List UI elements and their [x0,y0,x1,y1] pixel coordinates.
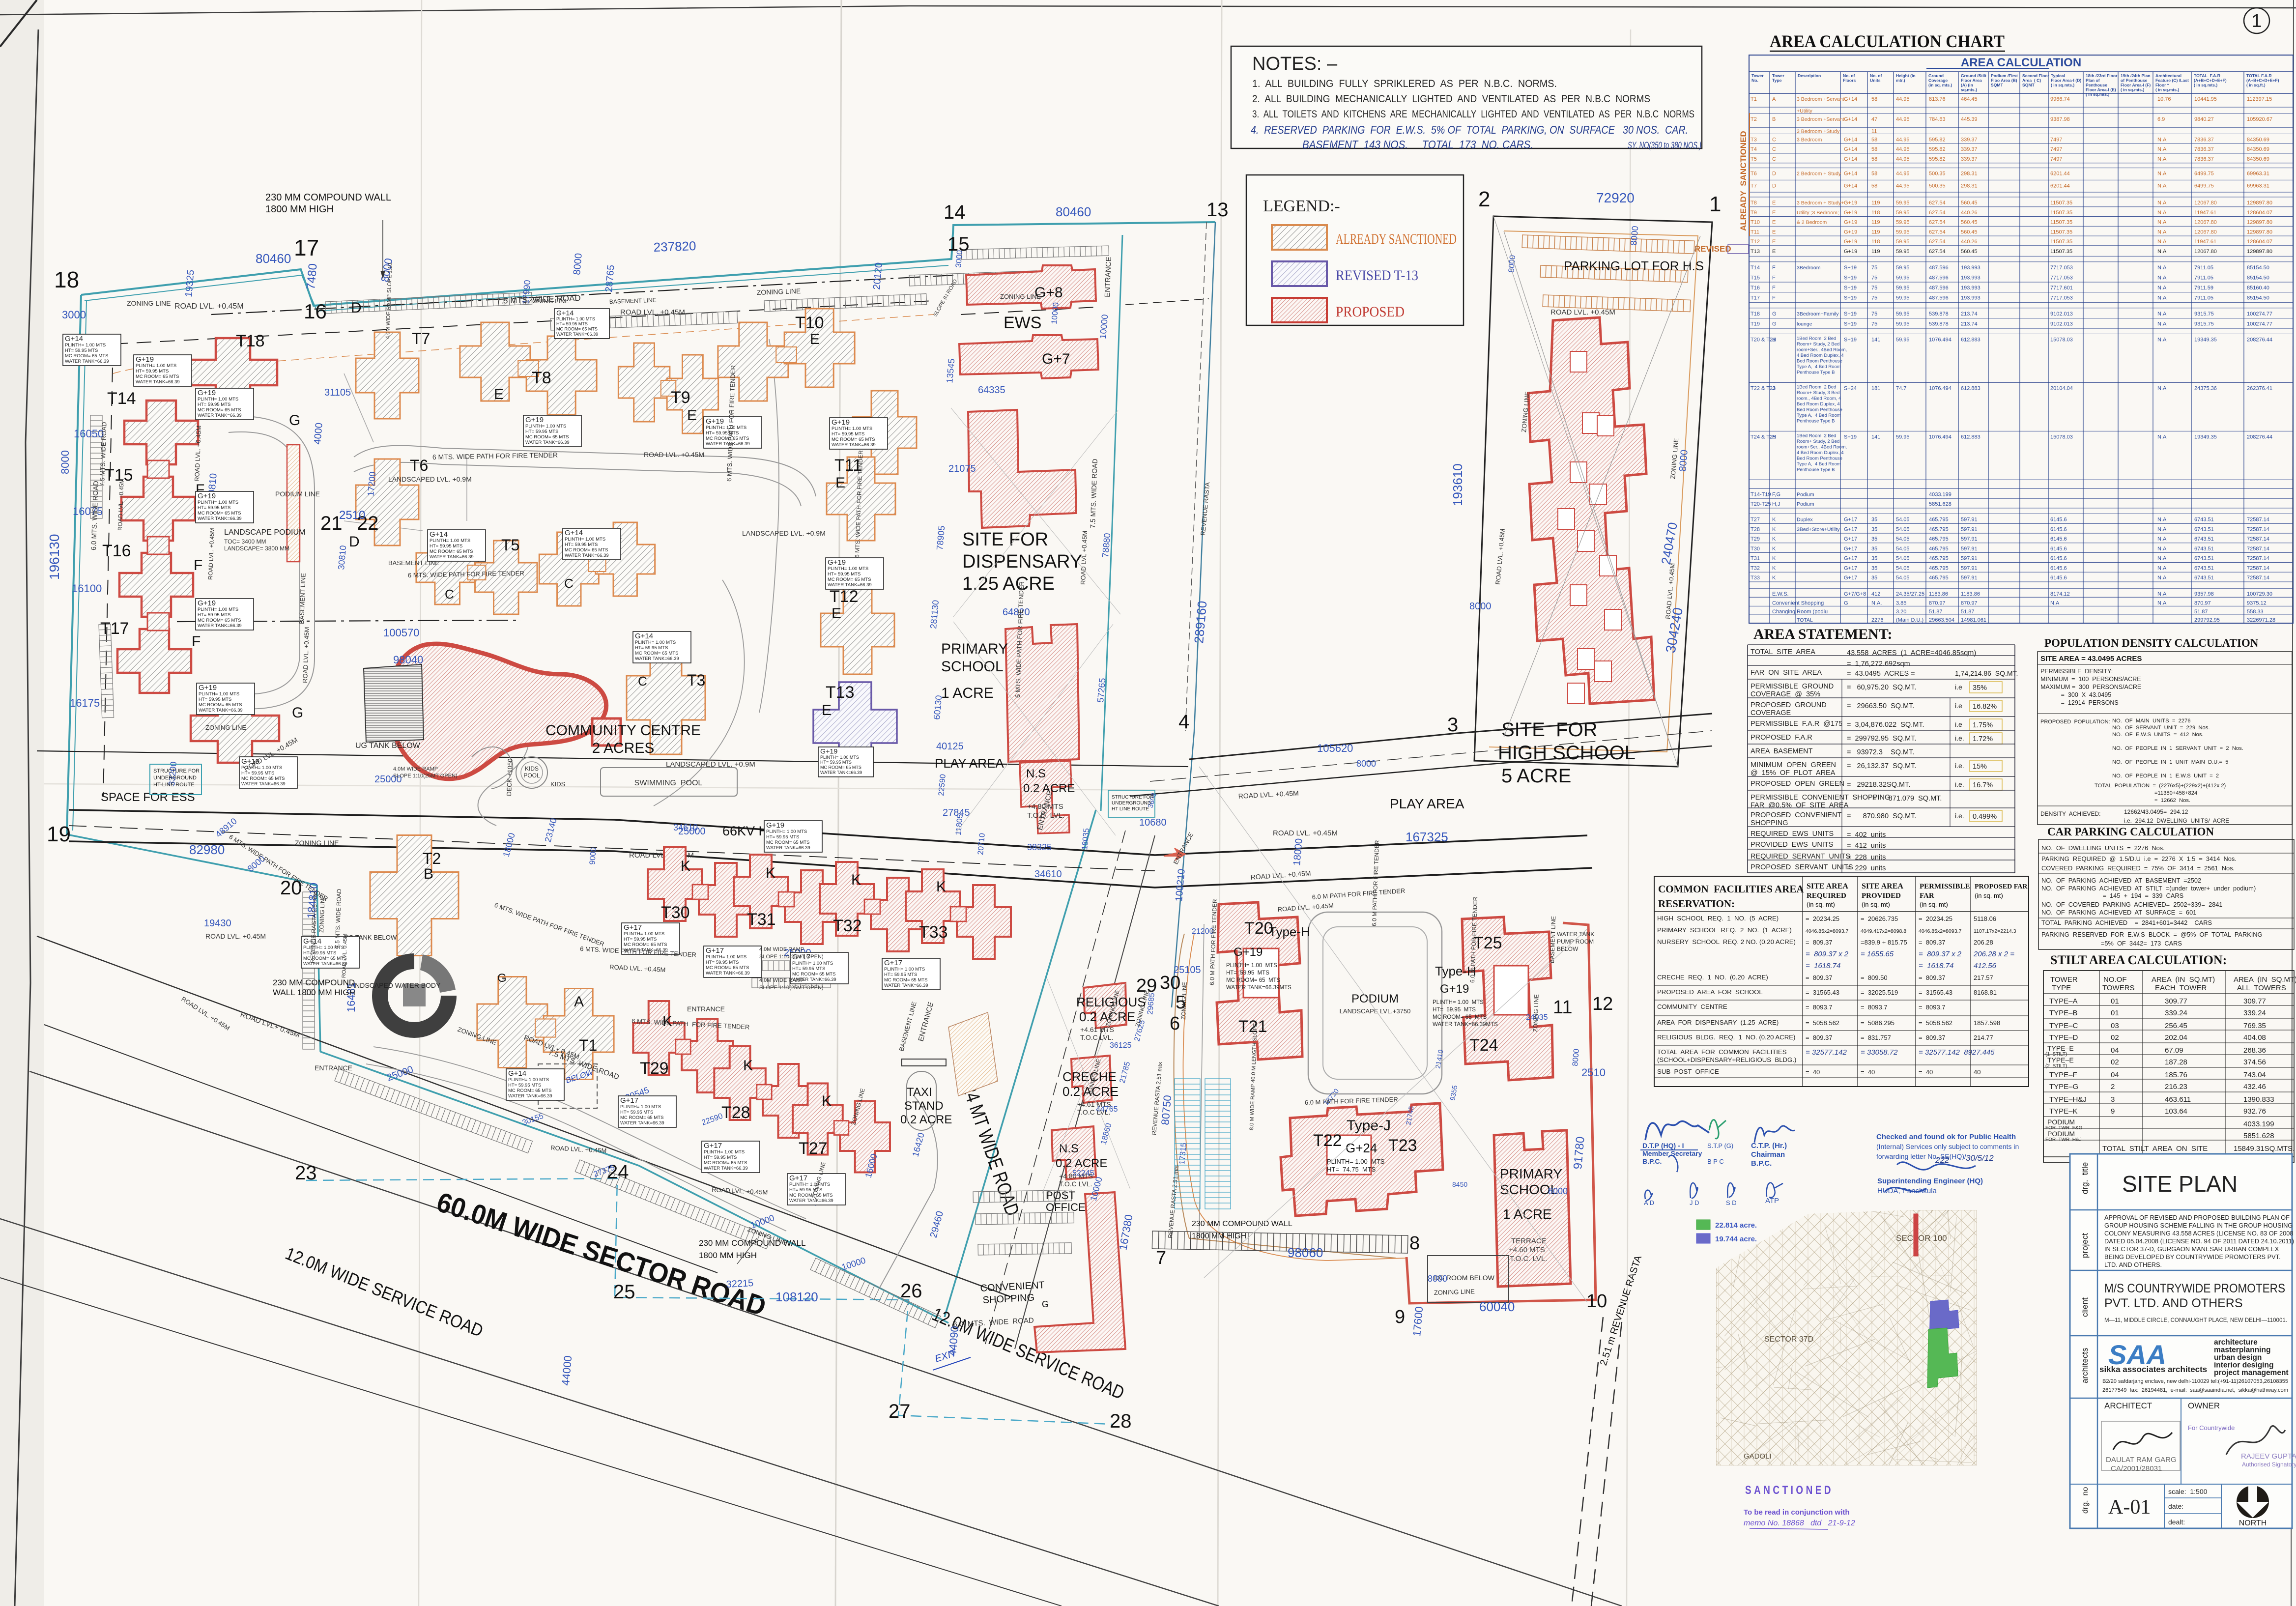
svg-text:82980: 82980 [189,842,225,857]
svg-text:= 809.37: = 809.37 [1806,974,1833,981]
svg-text:04: 04 [2111,1046,2119,1055]
svg-text:NO. OF PEOPLE IN 1 E.W.S: NO. OF PEOPLE IN 1 E.W.S UNIT = 2 [2112,773,2219,779]
svg-text:S.T.P (G): S.T.P (G) [1707,1142,1733,1149]
svg-text:612.883: 612.883 [1961,337,1980,343]
svg-text:Member Secretary: Member Secretary [1642,1149,1702,1157]
svg-text:UNDERGROUND: UNDERGROUND [153,775,197,781]
svg-text:PERMISSIBLE F.A.R @175: PERMISSIBLE F.A.R @175 [1751,720,1842,728]
svg-text:4.0M WIDE RAMP: 4.0M WIDE RAMP [759,977,804,983]
svg-text:HT= 59.95 MTS: HT= 59.95 MTS [303,950,336,956]
svg-text:6743.51: 6743.51 [2194,536,2214,542]
svg-text:PLINTH= 1.00 MTS: PLINTH= 1.00 MTS [508,1077,549,1083]
svg-text:HT LINE ROUTE: HT LINE ROUTE [1112,806,1149,812]
svg-text:487.596: 487.596 [1929,265,1949,271]
svg-text:G+17: G+17 [1844,526,1857,532]
svg-text:A: A [1772,96,1776,102]
svg-text:4 Bed Room Duplex, 4: 4 Bed Room Duplex, 4 [1797,353,1844,358]
svg-text:108120: 108120 [775,1290,818,1304]
svg-text:SUB POST OFFICE: SUB POST OFFICE [1657,1068,1719,1075]
svg-text:T9: T9 [1751,210,1757,216]
svg-text:TYPE–B: TYPE–B [2049,1009,2078,1017]
svg-text:627.54: 627.54 [1929,239,1946,245]
svg-text:TOWERS: TOWERS [2102,984,2135,992]
svg-text:T14: T14 [1751,265,1760,271]
svg-text:01: 01 [2111,997,2119,1005]
svg-text:G+17: G+17 [706,946,724,955]
svg-text:72587.14: 72587.14 [2247,546,2269,552]
svg-text:WATER TANK: WATER TANK [1557,931,1594,938]
svg-text:HT= 59.95 MTS: HT= 59.95 MTS [884,972,917,977]
svg-text:Ground /Stilt: Ground /Stilt [1961,73,1986,78]
svg-text:MC ROOM= 65 MTS: MC ROOM= 65 MTS [766,840,809,845]
svg-text:K: K [1772,546,1776,552]
svg-text:F: F [1772,295,1776,301]
svg-text:35: 35 [1871,536,1877,542]
svg-text:24375.36: 24375.36 [2194,385,2217,391]
svg-text:SLOPE 1:10(25MT OPEN): SLOPE 1:10(25MT OPEN) [393,773,458,779]
svg-text:= 8093.7: = 8093.7 [1919,1004,1946,1011]
svg-text:= 1655.65: = 1655.65 [1861,950,1894,958]
svg-text:room., 4Bed Room, 4: room., 4Bed Room, 4 [1797,396,1841,401]
svg-text:216.23: 216.23 [2165,1083,2187,1091]
svg-text:F: F [1772,265,1776,271]
svg-text:PLINTH= 1.00 MTS: PLINTH= 1.00 MTS [565,537,605,542]
svg-text:S+19: S+19 [1844,285,1857,291]
svg-text:44765: 44765 [1096,1105,1118,1114]
svg-text:3Bed+Store+Utility: 3Bed+Store+Utility [1797,526,1840,532]
svg-text:813.76: 813.76 [1929,96,1946,102]
svg-text:G: G [292,705,303,721]
svg-text:G+14: G+14 [1844,116,1857,122]
svg-text:T6: T6 [1751,171,1757,177]
svg-text:5118.06: 5118.06 [1974,915,1996,922]
svg-text:98060: 98060 [1288,1245,1323,1260]
svg-text:64335: 64335 [978,385,1005,396]
svg-text:GADOLI: GADOLI [1744,1452,1772,1461]
svg-text:= 809.50: = 809.50 [1861,974,1888,981]
svg-text:59.95: 59.95 [1896,210,1910,216]
svg-text:6145.6: 6145.6 [2050,556,2067,562]
svg-text:465.795: 465.795 [1929,556,1949,562]
svg-text:612.883: 612.883 [1961,385,1980,391]
svg-text:PLINTH= 1.00 MTS: PLINTH= 1.00 MTS [884,967,925,972]
svg-text:19: 19 [47,822,71,846]
svg-text:PLINTH= 1.00 MTS: PLINTH= 1.00 MTS [620,1104,661,1110]
svg-text:( in sq.mts.): ( in sq.mts.) [2155,87,2179,92]
svg-text:237820: 237820 [653,238,696,255]
svg-text:0.2 ACRE: 0.2 ACRE [900,1113,952,1126]
svg-text:HT= 59.95 MTS: HT= 59.95 MTS [198,402,230,407]
svg-text:7836.37: 7836.37 [2194,146,2214,152]
svg-text:G+17: G+17 [1844,575,1857,581]
svg-text:E: E [822,702,832,718]
svg-text:465.795: 465.795 [1929,526,1949,532]
svg-text:MC ROOM= 65 MTS: MC ROOM= 65 MTS [198,511,241,516]
svg-text:32215: 32215 [726,1278,754,1290]
svg-text:G+14: G+14 [1844,183,1857,189]
svg-text:6.9: 6.9 [2157,116,2165,122]
svg-text:ZONING LINE: ZONING LINE [757,287,801,296]
svg-text:D: D [349,534,360,550]
svg-text:project: project [2080,1233,2090,1258]
svg-text:19349.35: 19349.35 [2194,434,2217,440]
svg-text:ZONING LINE: ZONING LINE [1434,1288,1475,1296]
svg-text:59.95: 59.95 [1896,275,1910,281]
svg-text:44.95: 44.95 [1896,96,1910,102]
svg-text:PROPOSED: PROPOSED [1336,304,1405,320]
svg-text:(in sq. mt): (in sq. mt) [1920,901,1948,908]
svg-text:mtr.): mtr.) [1896,78,1905,83]
svg-text:SITE FOR: SITE FOR [962,529,1048,550]
svg-text:S+19: S+19 [1844,434,1857,440]
svg-text:12662/43.0495= 294.12: 12662/43.0495= 294.12 [2124,808,2188,815]
svg-text:627.54: 627.54 [1929,200,1946,206]
svg-text:masterplanning: masterplanning [2214,1346,2270,1354]
svg-text:( in sq.mts.): ( in sq.mts.) [2194,83,2217,87]
svg-text:19349.35: 19349.35 [2194,337,2217,343]
svg-text:T30: T30 [1751,546,1760,552]
svg-text:A: A [574,994,584,1010]
svg-text:MC ROOM= 65 MTS: MC ROOM= 65 MTS [624,942,667,947]
svg-text:36125: 36125 [1110,1041,1132,1050]
svg-text:PRIMARY: PRIMARY [941,641,1008,657]
svg-text:T14: T14 [107,389,136,408]
svg-text:EACH TOWER: EACH TOWER [2155,984,2207,992]
svg-text:C.T.P. (Hr.): C.T.P. (Hr.) [1751,1142,1787,1150]
svg-text:N.S: N.S [1026,767,1046,780]
svg-text:K: K [1772,575,1776,581]
svg-text:Authorised Signatory: Authorised Signatory [2242,1461,2296,1468]
svg-text:ROAD LVL. +0.45M: ROAD LVL. +0.45M [620,308,685,316]
svg-text:scale: 1:500: scale: 1:500 [2168,1488,2208,1495]
svg-text:T2: T2 [1751,116,1757,122]
svg-text:i.e.: i.e. [1955,734,1964,742]
svg-text:T24: T24 [1469,1036,1498,1055]
svg-text:G+7/G+8: G+7/G+8 [1844,591,1866,597]
svg-text:MC ROOM= 65 MTS: MC ROOM= 65 MTS [565,547,608,553]
svg-text:MC ROOM= 65 MTS: MC ROOM= 65 MTS [828,577,871,582]
svg-text:208276.44: 208276.44 [2247,434,2272,440]
svg-text:Floor Area: Floor Area [1961,78,1982,83]
svg-text:7497: 7497 [2050,156,2062,162]
svg-text:4. RESERVED PARKING FOR E.: 4. RESERVED PARKING FOR E.W.S. 5% OF TOT… [1251,123,1688,136]
svg-text:Floor Area-I (E): Floor Area-I (E) [2086,87,2116,92]
svg-text:G+17: G+17 [1844,536,1857,542]
svg-text:lounge: lounge [1797,321,1812,327]
svg-text:3226971.28: 3226971.28 [2247,617,2275,623]
svg-text:= 31565.43: = 31565.43 [1919,989,1952,996]
svg-text:TOTAL SITE AREA: TOTAL SITE AREA [1751,648,1815,656]
svg-text:G+14: G+14 [65,335,83,343]
svg-text:S+19: S+19 [1844,337,1857,343]
svg-text:LANDSCAPE= 3800 MM: LANDSCAPE= 3800 MM [224,545,289,552]
svg-text:COVERED PARKING REQUIRED =: COVERED PARKING REQUIRED = 75% OF 3414 =… [2041,864,2235,872]
svg-text:58: 58 [1871,146,1877,152]
svg-text:6201.44: 6201.44 [2050,171,2070,177]
svg-text:11507.35: 11507.35 [2050,220,2072,226]
svg-text:Ground: Ground [1928,73,1944,78]
svg-text:dealt:: dealt: [2168,1518,2185,1526]
svg-text:= 32025.519: = 32025.519 [1861,989,1898,996]
svg-text:G+19: G+19 [136,355,154,364]
svg-text:HT= 59.95 MTS: HT= 59.95 MTS [635,645,668,651]
svg-text:N.A: N.A [2157,311,2167,317]
svg-text:141: 141 [1871,337,1880,343]
svg-text:N.A: N.A [2157,265,2167,271]
svg-text:59.95: 59.95 [1896,229,1910,235]
svg-text:217.57: 217.57 [1974,974,1993,981]
svg-text:sikka associates architects: sikka associates architects [2099,1365,2207,1374]
svg-text:G+17: G+17 [1844,516,1857,522]
svg-text:WATER TANK=66.39: WATER TANK=66.39 [241,781,286,787]
svg-text:POOL: POOL [523,772,540,779]
svg-text:PLINTH= 1.00 MTS: PLINTH= 1.00 MTS [792,961,833,966]
svg-text:T15: T15 [1751,275,1760,281]
svg-text:4.0M WIDE RAMP: 4.0M WIDE RAMP [393,766,438,772]
svg-text:TOTAL F.A.R: TOTAL F.A.R [2246,73,2272,78]
svg-text:7836.37: 7836.37 [2194,137,2214,143]
svg-text:2276: 2276 [1871,617,1883,623]
svg-text:WATER TANK=66.39: WATER TANK=66.39 [789,1198,833,1204]
svg-text:59.95: 59.95 [1896,220,1910,226]
svg-text:339.24: 339.24 [2243,1009,2266,1017]
svg-text:16.7%: 16.7% [1973,781,1993,789]
svg-text:i.e.: i.e. [1955,780,1964,788]
svg-text:ENTRANCE: ENTRANCE [687,1005,725,1013]
svg-text:= 60,975.20 SQ.MT.: = 60,975.20 SQ.MT. [1847,684,1916,691]
svg-text:client: client [2080,1297,2090,1317]
svg-text:208276.44: 208276.44 [2247,337,2272,343]
svg-text:1800 MM HIGH: 1800 MM HIGH [1192,1232,1246,1240]
svg-text:PROPOSED GROUND: PROPOSED GROUND [1751,701,1827,709]
svg-text:N.A: N.A [2157,295,2167,301]
svg-text:Room+ Study, 2 Bed: Room+ Study, 2 Bed [1797,342,1839,347]
svg-text:N.A: N.A [2157,229,2167,235]
svg-text:WATER TANK=66.39: WATER TANK=66.39 [556,332,598,337]
svg-text:NO. OF PARKING ACHIEVED AT: NO. OF PARKING ACHIEVED AT SURFACE = 601 [2041,909,2196,916]
svg-text:MC ROOM= 65 MTS: MC ROOM= 65 MTS [241,776,285,781]
svg-text:BASEMENT 143 NOS. TOTAL: BASEMENT 143 NOS. TOTAL 173 NO. CARS. [1302,138,1533,151]
svg-text:N.A: N.A [2157,337,2167,343]
svg-text:D: D [351,300,362,316]
svg-text:N.A: N.A [2157,183,2167,189]
svg-text:PERMISSIBLE: PERMISSIBLE [1920,883,1970,890]
svg-text:MINIMUM OPEN GREEN: MINIMUM OPEN GREEN [1751,761,1836,769]
svg-text:HT= 59.95 MTS: HT= 59.95 MTS [624,937,657,942]
svg-text:TOTAL F.A.R: TOTAL F.A.R [2194,73,2221,78]
svg-text:8174.12: 8174.12 [2050,591,2070,597]
svg-text:558.33: 558.33 [2247,609,2264,615]
svg-text:T12: T12 [830,587,859,606]
svg-text:LEGEND:-: LEGEND:- [1263,197,1340,215]
svg-text:G+19: G+19 [1844,229,1857,235]
svg-text:NO. OF COVERED PARKING ACH: NO. OF COVERED PARKING ACHIEVED= 2502+33… [2041,901,2223,908]
svg-text:RAJEEV GUPTA: RAJEEV GUPTA [2241,1452,2296,1461]
svg-text:E: E [810,331,820,347]
svg-text:PROPOSED F.A.R: PROPOSED F.A.R [1751,734,1812,742]
svg-text:11507.35: 11507.35 [2050,210,2072,216]
svg-text:268.36: 268.36 [2243,1046,2266,1055]
svg-text:59.95: 59.95 [1896,321,1910,327]
svg-text:932.76: 932.76 [2243,1107,2266,1116]
svg-text:B.P.C.: B.P.C. [1642,1157,1662,1165]
svg-text:58: 58 [1871,156,1877,162]
svg-text:SITE AREA: SITE AREA [1807,882,1848,890]
svg-text:2: 2 [2111,1083,2115,1091]
svg-text:Typical: Typical [2051,73,2065,78]
svg-text:= 5058.562: = 5058.562 [1806,1019,1839,1027]
svg-text:627.54: 627.54 [1929,249,1946,255]
svg-text:54.05: 54.05 [1896,565,1910,571]
svg-text:BEING DEVELOPED BY COUNTRYWIDE: BEING DEVELOPED BY COUNTRYWIDE PROMOTERS… [2104,1253,2281,1261]
svg-text:= 40: = 40 [1919,1068,1933,1076]
svg-text:( in sq.mts.): ( in sq.mts.) [2121,87,2144,92]
svg-text:EWS: EWS [1004,314,1041,332]
svg-text:D: D [1772,171,1776,177]
svg-text:9: 9 [2111,1107,2115,1116]
svg-text:= 93972.3 SQ.MT.: = 93972.3 SQ.MT. [1847,748,1914,756]
svg-text:2 Bedroom + Study: 2 Bedroom + Study [1797,171,1841,177]
svg-text:1800 MM HIGH: 1800 MM HIGH [699,1251,757,1260]
svg-text:TOTAL AREA FOR COMMON FACI: TOTAL AREA FOR COMMON FACILITIES [1657,1048,1787,1056]
svg-text:PARKING LOT FOR H.S: PARKING LOT FOR H.S [1564,258,1704,273]
svg-text:SITE FOR: SITE FOR [1501,719,1598,741]
svg-text:For Countrywide: For Countrywide [2188,1424,2235,1432]
svg-text:11947.61: 11947.61 [2194,239,2216,245]
svg-text:No. of: No. of [1843,73,1855,78]
svg-text:K: K [936,879,946,895]
svg-text:G: G [1772,311,1777,317]
svg-text:256.45: 256.45 [2165,1022,2187,1030]
svg-text:REVISED: REVISED [1694,244,1731,254]
svg-text:TOTAL STILT AREA ON SITE: TOTAL STILT AREA ON SITE [2102,1145,2208,1153]
svg-text:54.05: 54.05 [1896,556,1910,562]
svg-text:19430: 19430 [204,918,231,929]
svg-text:85154.50: 85154.50 [2247,275,2269,281]
svg-text:FAR ON SITE AREA: FAR ON SITE AREA [1751,669,1822,677]
svg-text:TYPE–G: TYPE–G [2049,1083,2078,1091]
svg-text:85160.40: 85160.40 [2247,285,2269,291]
svg-text:ENTRANCE: ENTRANCE [1103,257,1113,297]
svg-text:N.A: N.A [2050,600,2060,606]
svg-text:627.54: 627.54 [1929,220,1946,226]
svg-text:MC ROOM= 65 MTS: MC ROOM= 65 MTS [198,407,241,413]
svg-text:K: K [766,865,775,881]
svg-text:T23: T23 [1388,1136,1417,1155]
svg-text:SLOPE 1:10(25MT OPEN): SLOPE 1:10(25MT OPEN) [759,954,824,960]
svg-text:= 229 units: = 229 units [1847,864,1886,872]
svg-text:G+14: G+14 [1844,146,1857,152]
svg-text:T12: T12 [1751,239,1760,245]
svg-text:Floors: Floors [1843,78,1856,83]
svg-text:59.95: 59.95 [1896,200,1910,206]
svg-text:3. ALL TOILETS AND KITCHEN: 3. ALL TOILETS AND KITCHENS ARE MECHANIC… [1252,109,1694,120]
svg-text:595.82: 595.82 [1929,146,1946,152]
svg-text:4046.85x2=8093.7: 4046.85x2=8093.7 [1806,928,1848,934]
svg-text:60040: 60040 [1479,1299,1515,1314]
svg-text:464.45: 464.45 [1961,96,1978,102]
svg-text:A-01: A-01 [2108,1496,2151,1519]
svg-text:6743.51: 6743.51 [2194,565,2214,571]
svg-text:5 ACRE: 5 ACRE [1501,765,1571,787]
svg-text:27: 27 [889,1401,911,1422]
svg-text:T18: T18 [1751,311,1760,317]
svg-text:G+17: G+17 [624,923,642,932]
svg-text:59.95: 59.95 [1896,249,1910,255]
svg-text:E: E [835,475,845,491]
svg-text:5851.628: 5851.628 [1929,501,1952,507]
svg-text:206.28: 206.28 [1974,939,1993,946]
svg-text:9102.013: 9102.013 [2050,321,2073,327]
svg-text:105620: 105620 [1317,742,1353,754]
svg-text:9315.75: 9315.75 [2194,311,2214,317]
svg-text:PERMISSIBLE CONVENIENT SHOPP: PERMISSIBLE CONVENIENT SHOPPING [1751,794,1890,802]
svg-text:TYPE–D: TYPE–D [2049,1033,2078,1042]
svg-text:20104.04: 20104.04 [2050,385,2073,391]
svg-text:18th /23rd Floor: 18th /23rd Floor [2086,73,2118,78]
svg-text:T33: T33 [1751,575,1760,581]
svg-text:9000: 9000 [588,847,598,865]
svg-text:ROAD LVL. +0.45M: ROAD LVL. +0.45M [1550,308,1615,316]
svg-text:WATER TANK=66.39: WATER TANK=66.39 [65,359,109,364]
svg-text:339.37: 339.37 [1961,156,1978,162]
svg-text:T28: T28 [721,1103,750,1122]
svg-text:N.A: N.A [2157,556,2167,562]
svg-text:T3: T3 [1751,137,1757,143]
svg-text:03: 03 [2111,1022,2119,1030]
svg-text:E: E [1772,239,1776,245]
svg-text:MC ROOM= 65 MTS: MC ROOM= 65 MTS [136,374,179,379]
svg-text:N.A: N.A [2157,210,2167,216]
svg-text:SITE AREA = 43.0495 ACRES: SITE AREA = 43.0495 ACRES [2040,655,2142,663]
svg-text:7497: 7497 [2050,137,2062,143]
svg-text:N.S: N.S [1059,1142,1079,1155]
svg-text:ZONING LINE: ZONING LINE [318,895,326,933]
svg-text:PLINTH= 1.00 MTS: PLINTH= 1.00 MTS [198,607,238,612]
svg-text:G: G [1844,600,1848,606]
svg-text:TOTAL: TOTAL [1797,617,1813,623]
svg-text:1. ALL BUILDING FULLY SPRI: 1. ALL BUILDING FULLY SPRIKLERED AS PER … [1252,78,1557,89]
svg-text:NOTES: –: NOTES: – [1252,54,1338,74]
svg-text:K: K [1772,516,1776,522]
svg-text:N.A: N.A [2157,146,2167,152]
svg-text:6145.6: 6145.6 [2050,565,2067,571]
svg-text:G+14: G+14 [508,1069,526,1078]
svg-text:T25: T25 [1473,934,1502,952]
svg-text:( in sq.ft.): ( in sq.ft.) [2246,83,2266,87]
svg-text:MC ROOM= 65 MTS: MC ROOM= 65 MTS [508,1088,551,1093]
svg-text:54.05: 54.05 [1896,516,1910,522]
svg-text:@ 15% OF PLOT AREA: @ 15% OF PLOT AREA [1751,769,1836,777]
svg-text:870.97: 870.97 [2194,600,2211,606]
svg-text:193.993: 193.993 [1961,265,1980,271]
svg-text:T11: T11 [1751,229,1759,235]
svg-text:35: 35 [1871,526,1877,532]
svg-text:54.05: 54.05 [1896,536,1910,542]
svg-text:85154.50: 85154.50 [2247,265,2269,271]
svg-text:Tower: Tower [1751,73,1764,78]
svg-text:G+14: G+14 [635,632,653,640]
svg-text:G: G [289,412,300,429]
svg-text:G+19: G+19 [198,389,216,397]
svg-text:PLINTH= 1.00 MTS: PLINTH= 1.00 MTS [832,426,872,431]
svg-text:PODIUM LINE: PODIUM LINE [275,490,320,498]
svg-text:Superintending Engineer (HQ): Superintending Engineer (HQ) [1877,1177,1983,1185]
svg-text:PLINTH= 1.00 MTS: PLINTH= 1.00 MTS [1327,1158,1385,1165]
svg-text:SPACE FOR ESS: SPACE FOR ESS [101,791,195,804]
svg-text:PLINTH= 1.00 MTS: PLINTH= 1.00 MTS [1226,963,1277,969]
svg-text:404.08: 404.08 [2243,1033,2266,1042]
